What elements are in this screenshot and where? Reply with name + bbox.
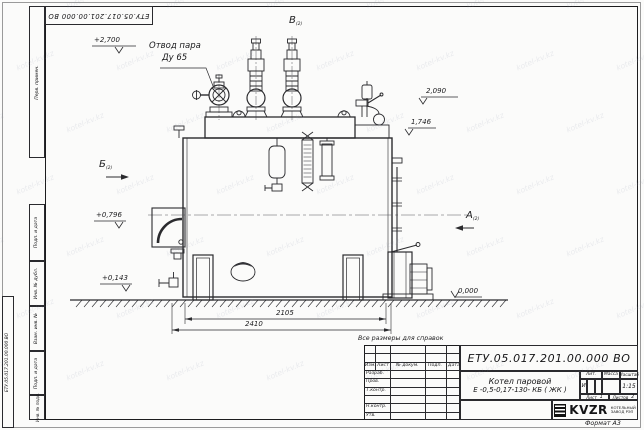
view-letter: Б <box>99 159 106 170</box>
tb-header-doc: № докум. <box>396 364 419 369</box>
frame-label: Подп. и дата <box>35 217 40 248</box>
tb-row-utv: Утв. <box>366 414 376 419</box>
tb-row-nkontr: Н.контр. <box>366 405 387 410</box>
tb-doc-number: ЕТУ.05.017.201.00.000 ВО <box>468 352 631 365</box>
steam-outlet-label-1: Отвод пара <box>149 42 201 51</box>
tb-sheet-label: Лист <box>586 395 597 400</box>
steam-outlet-label-2: Ду 65 <box>162 54 187 63</box>
view-sub: (2) <box>473 217 479 222</box>
side-doc-number-stamp: ЕТУ.05.017.201.00.000 ВО <box>2 296 14 428</box>
frame-box-inv-dubl: Инв. № дубл. <box>29 261 45 306</box>
tb-lit-label: Лит. <box>580 371 602 379</box>
tb-mass-value <box>602 379 620 395</box>
view-label-top: В(2) <box>289 16 302 28</box>
tb-header-podp: Подп. <box>428 364 442 369</box>
tb-sheets-label: Листов <box>613 395 629 400</box>
tb-sheets-total: 2 <box>631 395 634 400</box>
tb-product-line2: Е -0,5-0,17-130- КБ ( ЖК ) <box>473 386 566 394</box>
tb-row-tkontr: Т.контр. <box>366 389 386 394</box>
kvzr-emblem-icon <box>554 404 566 417</box>
view-sub: (2) <box>296 22 302 27</box>
frame-box-podp-data-1: Подп. и дата <box>29 204 45 261</box>
tb-extra-cell <box>460 400 552 420</box>
frame-label: Подп. и дата <box>35 357 40 388</box>
drawing-sheet: { "sheet": { "doc_number": "ЕТУ.05.017.2… <box>0 0 644 430</box>
view-label-left: Б(2) <box>99 160 112 172</box>
view-letter: В <box>289 15 296 26</box>
view-letter: А <box>466 210 473 221</box>
elevation-2090: 2,090 <box>426 88 446 95</box>
tb-header-data: Дата <box>448 364 460 369</box>
tb-doc-number-cell: ЕТУ.05.017.201.00.000 ВО <box>460 345 638 371</box>
frame-label: Инв. № дубл. <box>35 268 40 299</box>
tb-lit-value: И <box>580 379 587 395</box>
elevation-0796: +0,796 <box>96 212 122 219</box>
frame-box-perv-primen: Перв. примен. <box>29 6 45 158</box>
tb-logo-text: KVZR <box>569 403 608 417</box>
tb-row-razrab: Разраб. <box>366 372 384 377</box>
tb-org-line2: ЗАВОД РЭП <box>611 410 636 414</box>
tb-sheet-no: 1 <box>600 395 603 400</box>
tb-org-cell: KVZR КОТЕЛЬНЫЙ ЗАВОД РЭП <box>552 400 638 420</box>
top-doc-number: ЕТУ.05.017.201.00.000 ВО <box>48 12 149 20</box>
frame-box-inv-podl: Инв. № подл. <box>29 395 45 420</box>
view-label-right: А(2) <box>466 211 479 223</box>
title-block-left-grid: Изм. Лист № докум. Подп. Дата Разраб. Пр… <box>364 345 460 420</box>
tb-lit-cell-3 <box>595 379 602 395</box>
frame-box-vzam-inv: Взам. инв. № <box>29 306 45 351</box>
tb-product-line1: Котел паровой <box>489 377 552 386</box>
dimension-2410: 2410 <box>245 321 263 328</box>
view-sub: (2) <box>106 166 112 171</box>
side-doc-number: ЕТУ.05.017.201.00.000 ВО <box>6 332 11 391</box>
tb-row-prov: Пров. <box>366 380 379 385</box>
frame-label: Взам. инв. № <box>35 313 40 344</box>
format-note: Формат А3 <box>585 421 621 428</box>
elevation-0000: 0,000 <box>458 288 478 295</box>
tb-scale-value: 1:15 <box>620 379 638 395</box>
tb-header-izm: Изм. <box>365 364 376 369</box>
elevation-2700: +2,700 <box>94 37 120 44</box>
tb-product-cell: Котел паровой Е -0,5-0,17-130- КБ ( ЖК ) <box>460 371 580 400</box>
top-doc-number-stamp: ЕТУ.05.017.201.00.000 ВО <box>45 6 153 25</box>
frame-label: Инв. № подл. <box>35 393 40 422</box>
tb-mass-label: Масса <box>602 371 620 379</box>
elevation-1746: 1,746 <box>411 119 431 126</box>
tb-header-list: Лист <box>377 364 389 369</box>
frame-label: Перв. примен. <box>35 65 40 100</box>
tb-lit-cell-2 <box>587 379 594 395</box>
elevation-0143: +0,143 <box>102 275 128 282</box>
frame-box-podp-data-2: Подп. и дата <box>29 351 45 395</box>
dimension-2105: 2105 <box>276 310 294 317</box>
reference-note: Все размеры для справок <box>358 336 443 343</box>
tb-scale-label: Масштаб <box>620 371 638 379</box>
